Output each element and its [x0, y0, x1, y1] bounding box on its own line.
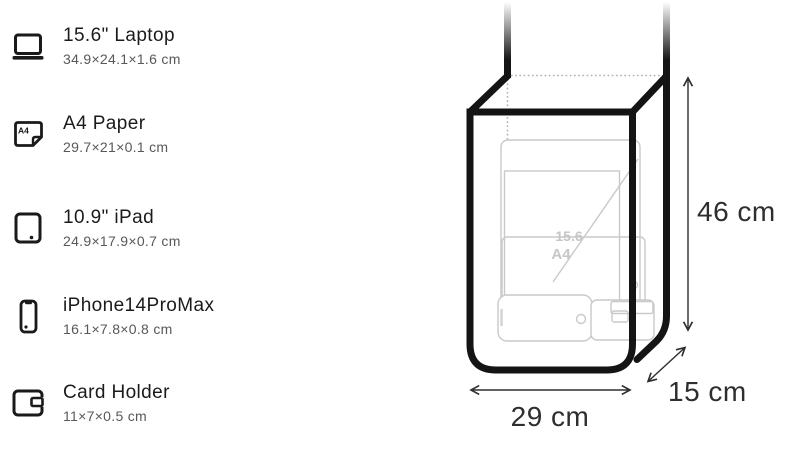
depth-dimension-label: 15 cm — [668, 376, 747, 407]
ghost-a4-label: A4 — [551, 246, 571, 263]
ghost-iphone — [498, 295, 592, 341]
bag-hidden-edges — [508, 76, 667, 142]
size-guide-infographic: 15.6" Laptop 34.9×24.1×1.6 cm A4 A4 Pape… — [0, 0, 800, 455]
ghost-card-holder — [591, 300, 654, 340]
width-dimension-label: 29 cm — [511, 401, 590, 432]
ghost-laptop-label: 15.6 — [555, 228, 582, 244]
bag-top-edge-left — [470, 76, 508, 112]
height-dimension-label: 46 cm — [697, 196, 776, 227]
ghost-laptop-diagonal — [553, 159, 638, 282]
bag-top-edge-right — [633, 76, 667, 112]
bag-diagram: 15.6 A4 46 cm 29 cm 15 cm — [0, 0, 800, 455]
